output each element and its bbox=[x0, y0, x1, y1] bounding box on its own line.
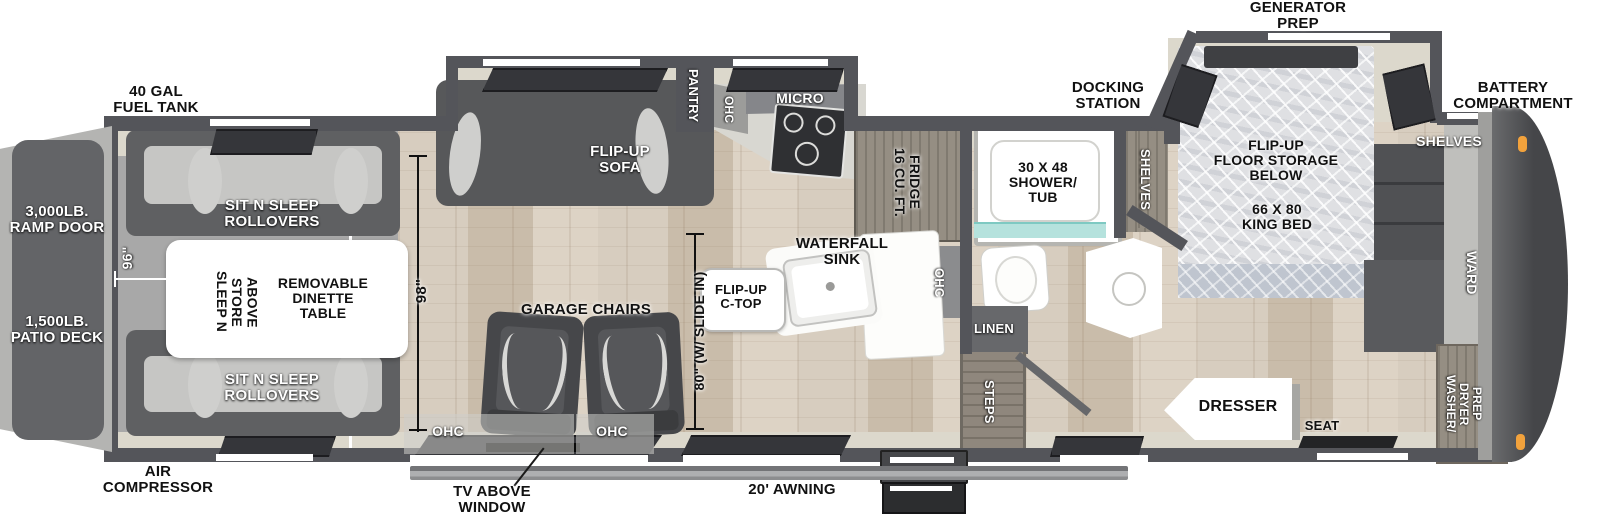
bath-shelves-label: SHELVES bbox=[1138, 138, 1152, 222]
ohc-side-label: OHC bbox=[932, 258, 946, 308]
bedroom-cabinet-upper bbox=[1374, 144, 1444, 262]
dim-96-tick bbox=[114, 271, 116, 287]
vanity bbox=[1086, 238, 1162, 338]
sleep-n-store-label: SLEEP N STORE ABOVE bbox=[214, 250, 259, 354]
window-bar bbox=[210, 119, 310, 126]
window-garage-top bbox=[210, 129, 318, 155]
seat-label: SEAT bbox=[1300, 419, 1344, 433]
dim-98-label: 98" bbox=[414, 266, 432, 316]
bed-storage-label: FLIP-UP FLOOR STORAGE BELOW bbox=[1200, 138, 1352, 183]
ramp-door-label: 3,000LB. RAMP DOOR bbox=[6, 204, 108, 236]
stove bbox=[769, 103, 849, 179]
toilet-bowl bbox=[993, 255, 1038, 306]
window-bar bbox=[216, 454, 313, 461]
burner-icon bbox=[815, 115, 837, 137]
steps-label: STEPS bbox=[982, 362, 996, 442]
shower-tub-label: 30 X 48 SHOWER/ TUB bbox=[988, 160, 1098, 205]
patio-deck-label: 1,500LB. PATIO DECK bbox=[6, 314, 108, 346]
ohc-top-label: OHC bbox=[722, 88, 735, 132]
air-compressor-label: AIR COMPRESSOR bbox=[98, 464, 218, 496]
dim-80-tick bbox=[686, 233, 704, 235]
entry-step-lower bbox=[882, 482, 966, 514]
marker-light-icon bbox=[1516, 434, 1525, 450]
king-bed-label: 66 X 80 KING BED bbox=[1212, 202, 1342, 232]
dim-80-tick bbox=[686, 428, 704, 430]
dim-80-label: 80" (W/ SLIDE IN) bbox=[692, 236, 710, 426]
micro-label: MICRO bbox=[760, 91, 840, 106]
bed-foot-band bbox=[1178, 264, 1374, 298]
ward-label: WARD bbox=[1464, 238, 1479, 308]
tv-above-window-label: TV ABOVE WINDOW bbox=[432, 484, 552, 516]
marker-light-icon bbox=[1518, 136, 1527, 152]
fridge-label: 16 CU. FT. FRIDGE bbox=[892, 134, 922, 230]
ohc-right-label: OHC bbox=[590, 424, 634, 439]
dresser-label: DRESSER bbox=[1192, 398, 1284, 415]
window-bar bbox=[410, 455, 648, 462]
generator-prep-label: GENERATOR PREP bbox=[1238, 0, 1358, 32]
window-bar bbox=[1268, 33, 1390, 40]
bedroom-shelves-label: SHELVES bbox=[1404, 134, 1494, 149]
bedroom-cabinet-lower bbox=[1364, 260, 1444, 352]
dim-98-tick bbox=[409, 155, 427, 157]
front-cap bbox=[1492, 106, 1568, 462]
battery-compartment-label: BATTERY COMPARTMENT bbox=[1438, 80, 1588, 112]
docking-station-label: DOCKING STATION bbox=[1052, 80, 1164, 112]
flip-up-sofa-label: FLIP-UP SOFA bbox=[550, 144, 690, 176]
step-tread bbox=[890, 486, 952, 491]
linen-label: LINEN bbox=[962, 322, 1026, 336]
fuel-tank-label: 40 GAL FUEL TANK bbox=[96, 84, 216, 116]
dim-98-tick bbox=[409, 429, 427, 431]
cabinet-divider bbox=[1374, 182, 1444, 185]
garage-chairs-label: GARAGE CHAIRS bbox=[516, 302, 656, 318]
ramp-door-panel bbox=[12, 140, 104, 440]
burner-icon bbox=[783, 112, 805, 134]
window-bar bbox=[1060, 455, 1148, 462]
window-bar bbox=[683, 455, 840, 462]
shower-glass bbox=[974, 222, 1106, 238]
dim-96-line bbox=[114, 278, 172, 280]
dinette-label: REMOVABLE DINETTE TABLE bbox=[262, 276, 384, 321]
window-kitchen bbox=[726, 68, 844, 92]
window-sofa-slide bbox=[482, 68, 668, 92]
burner-icon bbox=[794, 141, 820, 167]
sit-n-sleep-top-label: SIT N SLEEP ROLLOVERS bbox=[172, 198, 372, 230]
wall-kitchen-bath-divider bbox=[960, 126, 972, 354]
window-awning-area bbox=[681, 435, 851, 456]
cabinet-divider bbox=[1374, 222, 1444, 225]
vanity-sink bbox=[1112, 272, 1146, 306]
window-bar bbox=[483, 59, 640, 66]
toilet bbox=[980, 244, 1050, 314]
step-tread bbox=[890, 457, 954, 463]
window-entry-area bbox=[1050, 436, 1144, 457]
flip-up-ctop-label: FLIP-UP C-TOP bbox=[702, 283, 780, 311]
window-bar bbox=[1317, 453, 1408, 460]
sit-n-sleep-bottom-label: SIT N SLEEP ROLLOVERS bbox=[172, 372, 372, 404]
pantry-label: PANTRY bbox=[686, 64, 700, 128]
ohc-left-label: OHC bbox=[426, 424, 470, 439]
floorplan-canvas: 96" 98" 80" (W/ SLIDE IN) 40 GAL FUEL TA… bbox=[0, 0, 1600, 518]
washer-dryer-label: WASHER/ DRYER PREP bbox=[1444, 356, 1483, 452]
window-bar bbox=[733, 59, 828, 66]
waterfall-sink-label: WATERFALL SINK bbox=[792, 236, 892, 268]
dim-96-label: 96" bbox=[120, 238, 136, 278]
wall-shower-right bbox=[1114, 126, 1126, 238]
awning-label: 20' AWNING bbox=[732, 482, 852, 498]
bed-headboard bbox=[1204, 46, 1358, 68]
